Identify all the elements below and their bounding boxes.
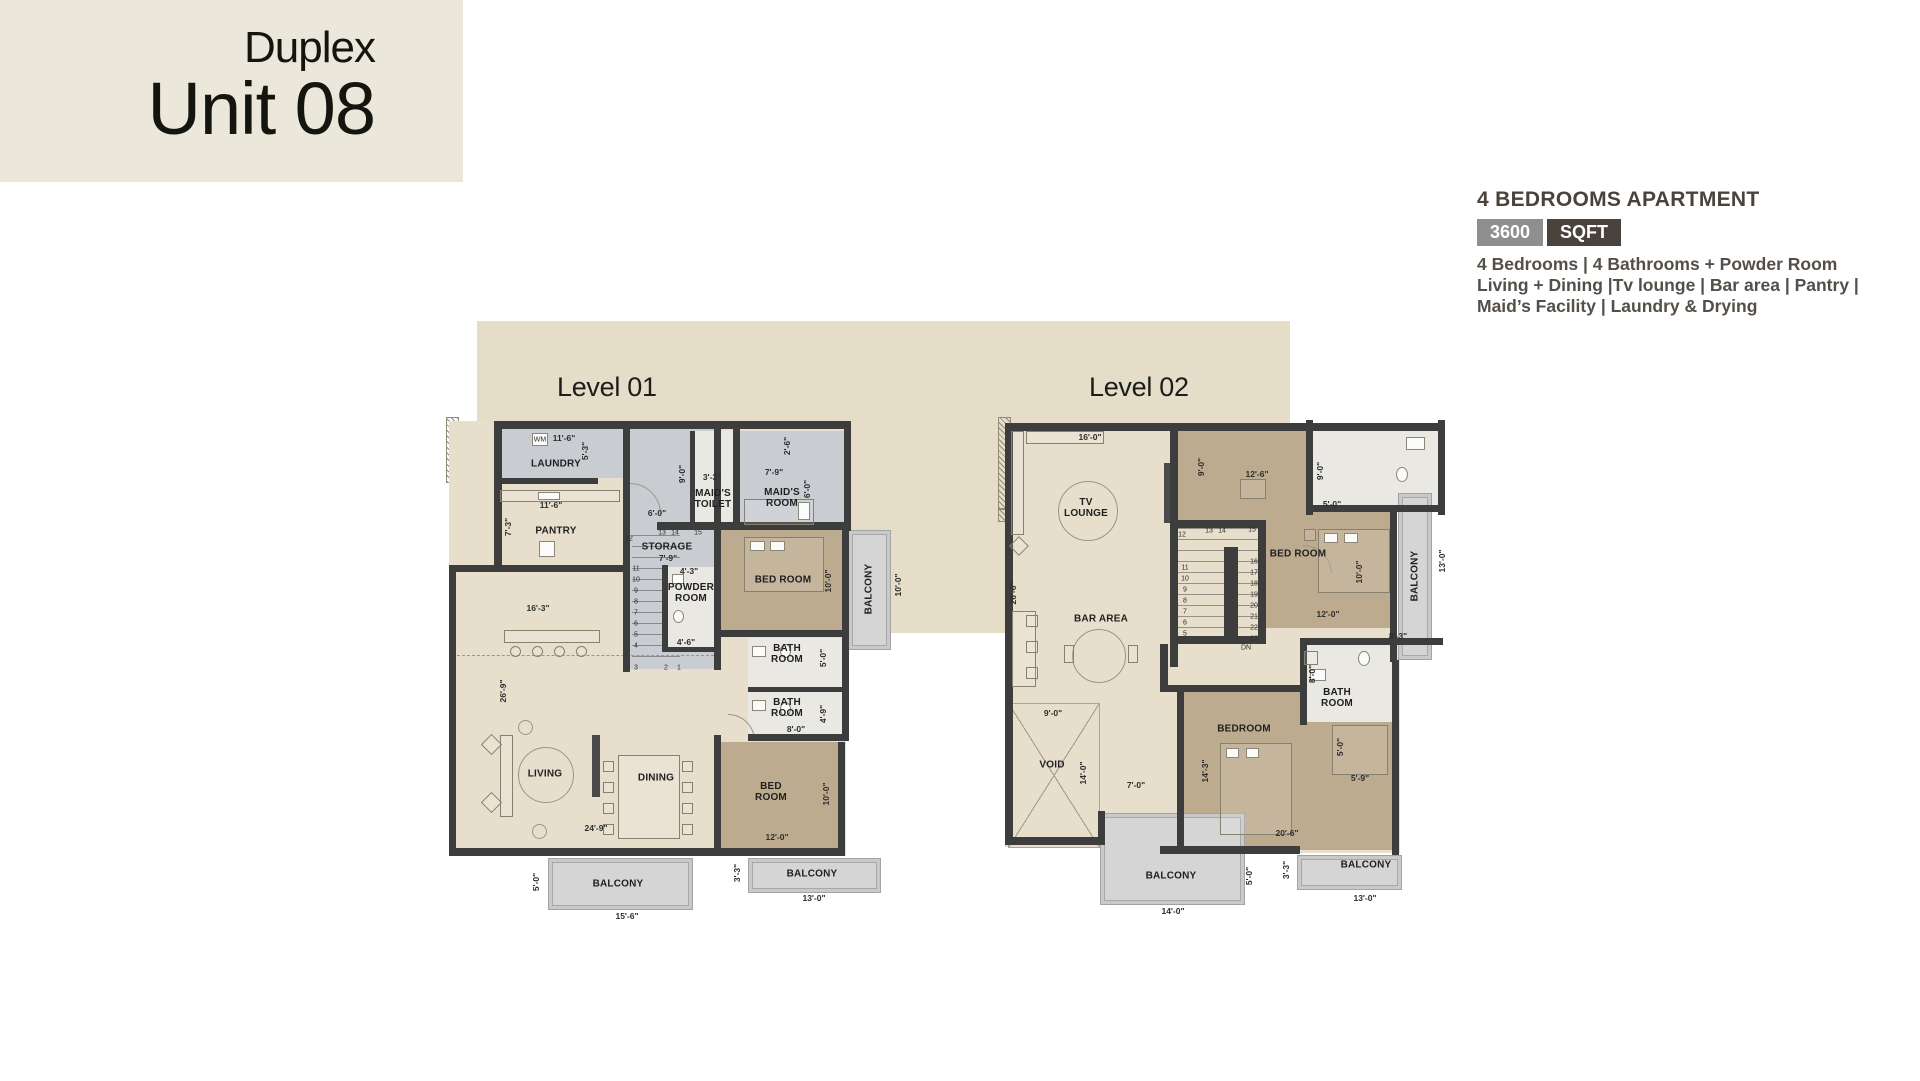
dimension-label: 1 bbox=[677, 665, 681, 672]
dimension-label: 10 bbox=[632, 577, 640, 584]
dimension-label: 8'-0" bbox=[787, 724, 805, 734]
dimension-label: 5'-0" bbox=[1244, 867, 1254, 885]
feature-list: 4 Bedrooms | 4 Bathrooms + Powder Room L… bbox=[1477, 254, 1917, 317]
dimension-label: 16'-0" bbox=[1078, 432, 1101, 442]
dimension-label: 13 bbox=[658, 530, 666, 537]
dimension-label: 9 bbox=[1183, 587, 1187, 594]
dimension-label: 5'-0" bbox=[531, 873, 541, 891]
dimension-label: 12'-6" bbox=[1245, 469, 1268, 479]
dimension-label: 5'-9" bbox=[1351, 773, 1369, 783]
dimension-label: 5'-0" bbox=[1335, 738, 1345, 756]
unit-title: Unit 08 bbox=[0, 72, 375, 146]
dimension-label: 14'-3" bbox=[1200, 759, 1210, 782]
dimension-layer: 11'-6"WM5'-3"11'-6"7'-3"9'-0"6'-0"3'-3"7… bbox=[446, 417, 911, 932]
dimension-label: 6 bbox=[1183, 620, 1187, 627]
dimension-label: 9'-0" bbox=[677, 465, 687, 483]
feature-line: 4 Bedrooms | 4 Bathrooms + Powder Room bbox=[1477, 254, 1917, 275]
dimension-label: 10'-0" bbox=[823, 569, 833, 592]
dimension-label: 13'-0" bbox=[1353, 893, 1376, 903]
dimension-label: 7'-3" bbox=[503, 518, 513, 536]
dimension-label: 5'-3" bbox=[580, 442, 590, 460]
dimension-label: 15 bbox=[1248, 527, 1256, 534]
dimension-label: 9'-0" bbox=[1044, 708, 1062, 718]
dimension-label: WM bbox=[534, 437, 546, 444]
dimension-label: 14'-0" bbox=[1161, 906, 1184, 916]
unit-subtitle: Duplex bbox=[0, 26, 375, 70]
dimension-label: 14 bbox=[1218, 528, 1226, 535]
area-unit: SQFT bbox=[1547, 219, 1621, 246]
dimension-label: 12 bbox=[1178, 532, 1186, 539]
dimension-label: 7 bbox=[634, 610, 638, 617]
dimension-label: 6'-0" bbox=[648, 508, 666, 518]
dimension-label: DN bbox=[1241, 645, 1251, 652]
dimension-label: 20'-6" bbox=[1275, 828, 1298, 838]
dimension-label: 24'-9" bbox=[584, 823, 607, 833]
dimension-label: 6 bbox=[634, 621, 638, 628]
dimension-label: 6'-0" bbox=[802, 480, 812, 498]
dimension-label: 11'-6" bbox=[553, 433, 576, 443]
dimension-label: 8'-0" bbox=[1307, 665, 1317, 683]
dimension-label: 21 bbox=[1250, 614, 1258, 621]
dimension-label: 7'-0" bbox=[1127, 780, 1145, 790]
dimension-label: 26'-9" bbox=[498, 679, 508, 702]
dimension-label: 3'-3" bbox=[732, 864, 742, 882]
dimension-label: 3'-3" bbox=[703, 472, 721, 482]
feature-line: Living + Dining |Tv lounge | Bar area | … bbox=[1477, 275, 1917, 296]
apartment-info: 4 BEDROOMS APARTMENT 3600 SQFT 4 Bedroom… bbox=[1477, 188, 1917, 317]
dimension-label: 11 bbox=[632, 566, 639, 573]
dimension-label: 19 bbox=[1250, 592, 1258, 599]
dimension-label: 18 bbox=[1250, 581, 1258, 588]
dimension-label: 17 bbox=[1250, 570, 1258, 577]
dimension-label: 15'-6" bbox=[615, 911, 638, 921]
dimension-layer: 16'-0"26'-6"9'-0"12'-6"9'-0"5'-0"10'-0"1… bbox=[998, 417, 1463, 932]
dimension-label: 11 bbox=[1181, 565, 1188, 572]
dimension-label: 12'-0" bbox=[765, 832, 788, 842]
floor-plan-level-01: LAUNDRY PANTRY MAID'S TOILET MAID'S ROOM… bbox=[446, 417, 911, 932]
dimension-label: 10'-0" bbox=[821, 782, 831, 805]
dimension-label: 16'-3" bbox=[526, 603, 549, 613]
dimension-label: 26'-6" bbox=[1008, 581, 1018, 604]
dimension-label: 5'-0" bbox=[1323, 499, 1341, 509]
dimension-label: 3 bbox=[634, 665, 638, 672]
dimension-label: 4'-6" bbox=[677, 637, 695, 647]
dimension-label: 9 bbox=[634, 588, 638, 595]
dimension-label: 4'-9" bbox=[818, 705, 828, 723]
dimension-label: 5'-0" bbox=[818, 649, 828, 667]
dimension-label: 10 bbox=[1181, 576, 1189, 583]
dimension-label: 4'-3" bbox=[680, 566, 698, 576]
dimension-label: 13 bbox=[1205, 528, 1213, 535]
dimension-label: 10'-0" bbox=[1354, 560, 1364, 583]
dimension-label: 8'-3" bbox=[1389, 631, 1407, 641]
dimension-label: 7 bbox=[1183, 609, 1187, 616]
dimension-label: 12'-0" bbox=[1316, 609, 1339, 619]
dimension-label: 9'-0" bbox=[1196, 458, 1206, 476]
dimension-label: 5 bbox=[634, 632, 638, 639]
floor-plan-brochure: { "unit_card": { "subtitle": "Duplex", "… bbox=[0, 0, 1920, 1081]
feature-line: Maid’s Facility | Laundry & Drying bbox=[1477, 296, 1917, 317]
dimension-label: 2'-6" bbox=[782, 437, 792, 455]
dimension-label: 4 bbox=[634, 643, 638, 650]
floor-plan-level-02: TV LOUNGE BAR AREA VOID BED ROOM BEDROOM… bbox=[998, 417, 1463, 932]
level-02-label: Level 02 bbox=[1089, 372, 1189, 403]
dimension-label: 14'-0" bbox=[1078, 761, 1088, 784]
area-badge: 3600 SQFT bbox=[1477, 219, 1621, 246]
apartment-type-title: 4 BEDROOMS APARTMENT bbox=[1477, 188, 1917, 212]
dimension-label: 12 bbox=[625, 536, 633, 543]
area-value: 3600 bbox=[1477, 219, 1543, 246]
dimension-label: 13'-0" bbox=[1437, 549, 1447, 572]
unit-title-card: Duplex Unit 08 bbox=[0, 0, 463, 182]
dimension-label: 16 bbox=[1250, 559, 1258, 566]
dimension-label: 10'-0" bbox=[893, 573, 903, 596]
dimension-label: 9'-0" bbox=[1315, 462, 1325, 480]
dimension-label: 15 bbox=[694, 530, 702, 537]
dimension-label: 7'-9" bbox=[659, 553, 677, 563]
dimension-label: 7'-9" bbox=[765, 467, 783, 477]
dimension-label: 5 bbox=[1183, 631, 1187, 638]
dimension-label: 11'-6" bbox=[540, 500, 563, 510]
dimension-label: 20 bbox=[1250, 603, 1258, 610]
dimension-label: 8 bbox=[634, 599, 638, 606]
dimension-label: 14 bbox=[671, 530, 679, 537]
level-01-label: Level 01 bbox=[557, 372, 657, 403]
dimension-label: 23 bbox=[1250, 636, 1258, 643]
dimension-label: 22 bbox=[1250, 625, 1258, 632]
dimension-label: 13'-0" bbox=[802, 893, 825, 903]
dimension-label: 3'-3" bbox=[1281, 861, 1291, 879]
dimension-label: 8 bbox=[1183, 598, 1187, 605]
dimension-label: 2 bbox=[664, 665, 668, 672]
